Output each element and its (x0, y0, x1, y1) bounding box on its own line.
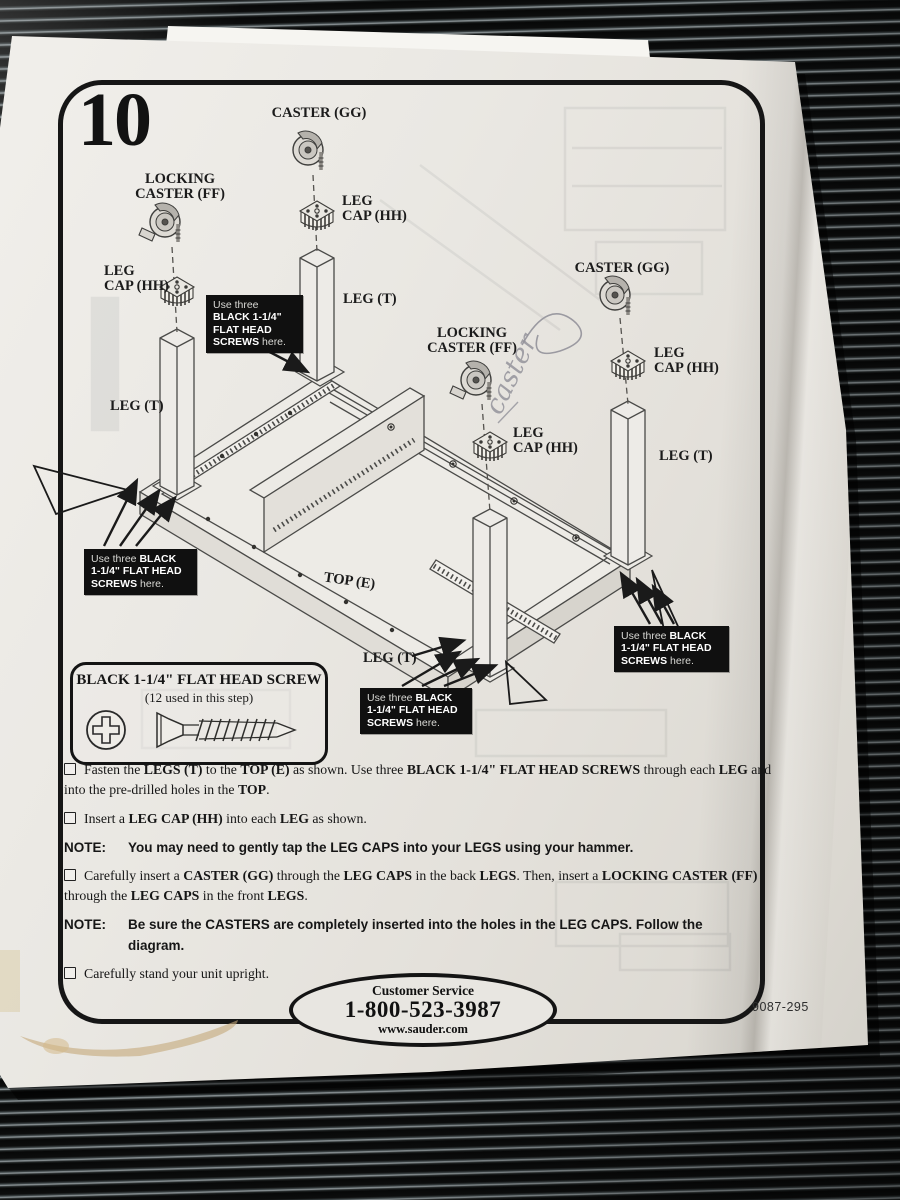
instruction-step: Carefully insert a CASTER (GG) through t… (64, 866, 772, 906)
photo-of-instruction-manual: caster CASTER (GG)LOCKINGCASTER (FF)LEGC… (0, 0, 900, 1200)
note-label: NOTE: (64, 838, 128, 858)
instruction-step: Fasten the LEGS (T) to the TOP (E) as sh… (64, 760, 772, 800)
note-text: You may need to gently tap the LEG CAPS … (128, 838, 772, 858)
checkbox-icon (64, 869, 76, 881)
screw-callout-line: SCREWS here. (213, 336, 297, 348)
screw-legend: BLACK 1-1/4" FLAT HEAD SCREW (12 used in… (70, 662, 328, 765)
customer-service-oval: Customer Service 1-800-523-3987 www.saud… (289, 973, 557, 1047)
note: NOTE:You may need to gently tap the LEG … (64, 838, 772, 858)
step-number: 10 (78, 84, 150, 156)
phillips-head-icon (87, 711, 125, 749)
customer-service-website: www.sauder.com (293, 1023, 553, 1037)
part-number: 9087-295 (752, 1000, 809, 1014)
screw-callout-line: FLAT HEAD (213, 324, 297, 336)
screw-callout: Use threeBLACK 1-1/4"FLAT HEADSCREWS her… (206, 295, 303, 353)
screw-callout-line: SCREWS here. (91, 578, 191, 590)
screw-callout-line: Use three BLACK (367, 692, 466, 704)
note: NOTE:Be sure the CASTERS are completely … (64, 915, 772, 956)
screw-legend-title: BLACK 1-1/4" FLAT HEAD SCREW (73, 672, 325, 689)
screw-callout-line: Use three BLACK (91, 553, 191, 565)
checklist: Fasten the LEGS (T) to the TOP (E) as sh… (64, 760, 772, 993)
instruction-step: Insert a LEG CAP (HH) into each LEG as s… (64, 809, 772, 829)
screw-callout: Use three BLACK1-1/4" FLAT HEADSCREWS he… (84, 549, 197, 595)
checkbox-icon (64, 812, 76, 824)
flat-head-screw-icon (157, 713, 295, 747)
screw-callout-line: 1-1/4" FLAT HEAD (367, 704, 466, 716)
screw-callout-line: BLACK 1-1/4" (213, 311, 297, 323)
screw-callout-line: Use three (213, 299, 297, 311)
customer-service-phone: 1-800-523-3987 (293, 998, 553, 1022)
checkbox-icon (64, 967, 76, 979)
note-label: NOTE: (64, 915, 128, 956)
screw-illustration (81, 706, 317, 752)
note-text: Be sure the CASTERS are completely inser… (128, 915, 772, 956)
screw-callout-line: Use three BLACK (621, 630, 723, 642)
customer-service-label: Customer Service (293, 984, 553, 999)
screw-callout-line: SCREWS here. (367, 717, 466, 729)
screw-legend-subtitle: (12 used in this step) (73, 690, 325, 706)
screw-callout-line: SCREWS here. (621, 655, 723, 667)
screw-callout-line: 1-1/4" FLAT HEAD (621, 642, 723, 654)
screw-callout: Use three BLACK1-1/4" FLAT HEADSCREWS he… (360, 688, 472, 734)
checkbox-icon (64, 763, 76, 775)
screw-callout-line: 1-1/4" FLAT HEAD (91, 565, 191, 577)
screw-callout: Use three BLACK1-1/4" FLAT HEADSCREWS he… (614, 626, 729, 672)
instruction-sheet: caster CASTER (GG)LOCKINGCASTER (FF)LEGC… (0, 0, 900, 1200)
